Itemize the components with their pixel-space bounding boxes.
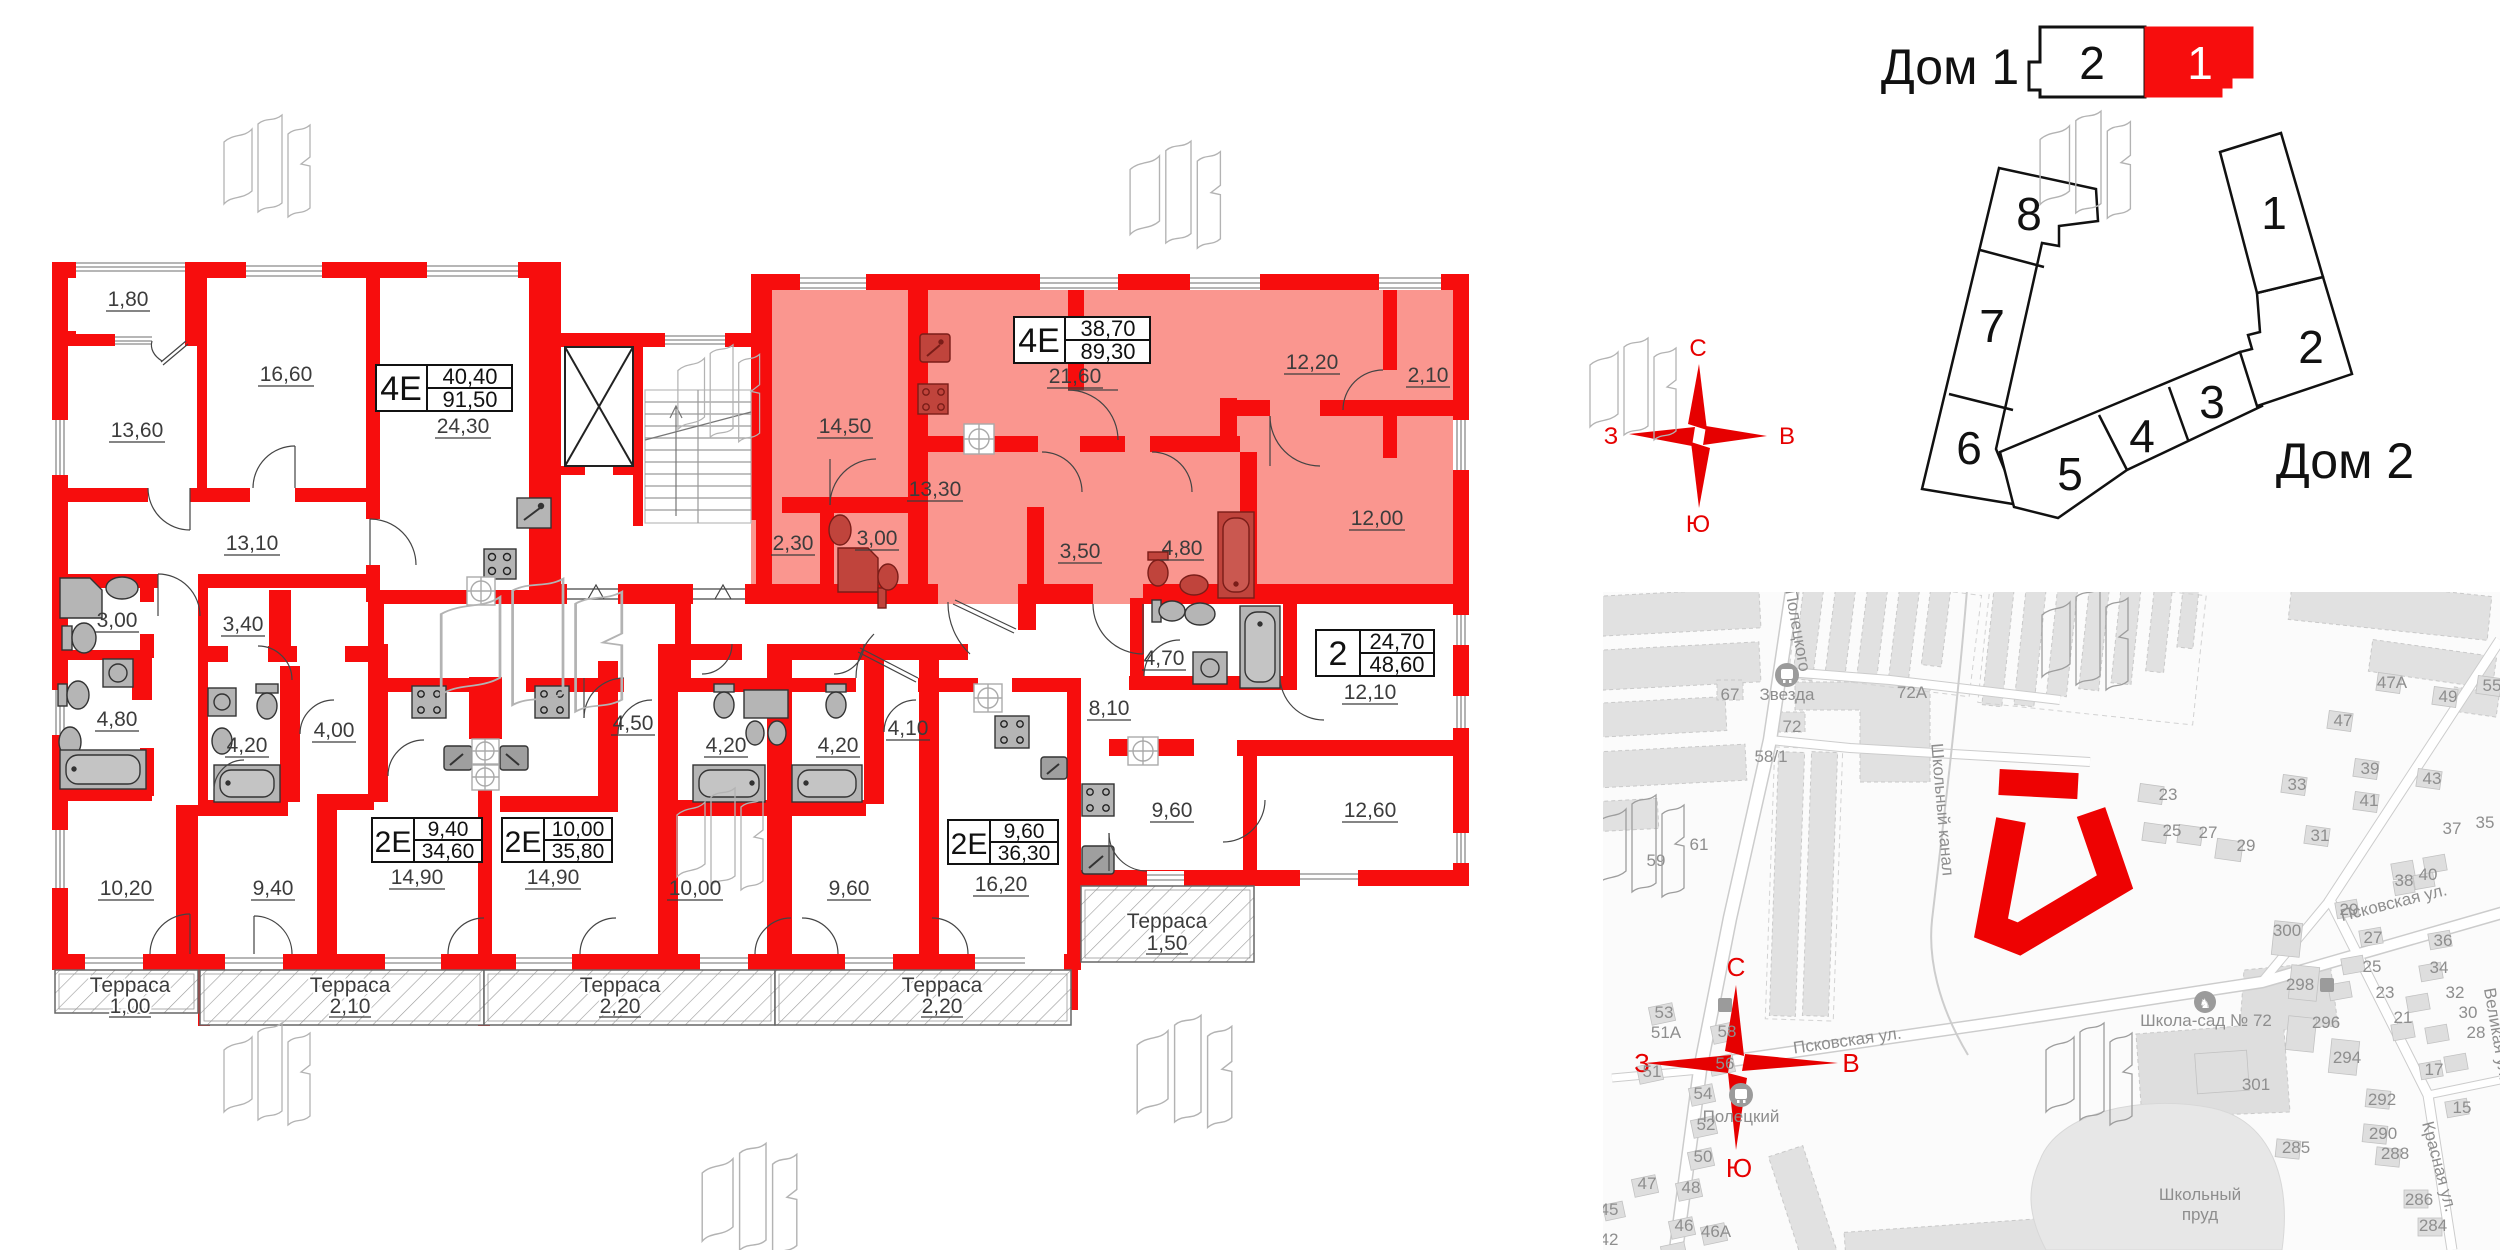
svg-text:2,10: 2,10: [1408, 364, 1449, 387]
svg-text:47А: 47А: [2377, 673, 2408, 692]
svg-text:4,10: 4,10: [888, 717, 929, 740]
svg-text:21: 21: [2394, 1008, 2413, 1027]
svg-text:С: С: [1727, 952, 1746, 982]
svg-text:3,40: 3,40: [223, 613, 264, 636]
svg-text:285: 285: [2282, 1138, 2310, 1157]
svg-text:1: 1: [2261, 187, 2287, 239]
svg-text:33: 33: [2288, 775, 2307, 794]
svg-text:З: З: [1604, 423, 1619, 450]
svg-text:286: 286: [2405, 1190, 2433, 1209]
svg-text:72А: 72А: [1897, 683, 1928, 702]
svg-text:24,30: 24,30: [437, 415, 490, 438]
svg-text:3,00: 3,00: [857, 527, 898, 550]
svg-text:300: 300: [2273, 921, 2301, 940]
svg-text:56: 56: [1716, 1054, 1735, 1073]
svg-text:284: 284: [2419, 1216, 2447, 1235]
svg-text:2Е: 2Е: [375, 826, 412, 859]
svg-text:4Е: 4Е: [380, 370, 422, 408]
svg-text:301: 301: [2242, 1075, 2270, 1094]
svg-text:31: 31: [2311, 826, 2330, 845]
svg-text:25: 25: [2363, 957, 2382, 976]
svg-text:4,80: 4,80: [97, 708, 138, 731]
svg-text:3: 3: [2199, 376, 2225, 428]
svg-text:12,60: 12,60: [1344, 799, 1397, 822]
svg-text:♞: ♞: [2199, 996, 2211, 1011]
svg-text:52: 52: [1697, 1115, 1716, 1134]
svg-text:пруд: пруд: [2182, 1205, 2218, 1224]
svg-text:41: 41: [2360, 791, 2379, 810]
svg-text:1,80: 1,80: [108, 288, 149, 311]
svg-text:16,20: 16,20: [975, 873, 1028, 896]
svg-text:24,70: 24,70: [1369, 629, 1424, 654]
svg-text:9,60: 9,60: [1004, 820, 1045, 843]
svg-text:294: 294: [2333, 1048, 2361, 1067]
svg-text:Ю: Ю: [1726, 1153, 1752, 1183]
svg-text:1: 1: [2187, 37, 2213, 89]
svg-text:48,60: 48,60: [1369, 652, 1424, 677]
svg-text:298: 298: [2286, 975, 2314, 994]
svg-text:36,30: 36,30: [998, 842, 1051, 865]
svg-text:54: 54: [1694, 1084, 1713, 1103]
svg-text:72: 72: [1783, 717, 1802, 736]
svg-text:2Е: 2Е: [951, 828, 988, 861]
svg-text:58: 58: [1718, 1022, 1737, 1041]
svg-text:13,30: 13,30: [909, 478, 962, 501]
svg-text:290: 290: [2369, 1124, 2397, 1143]
svg-text:34: 34: [2430, 958, 2449, 977]
svg-text:В: В: [1842, 1048, 1859, 1078]
svg-text:Терраса: Терраса: [90, 974, 171, 997]
svg-text:4,80: 4,80: [1162, 537, 1203, 560]
svg-text:4Е: 4Е: [1018, 322, 1060, 360]
svg-text:53: 53: [1655, 1003, 1674, 1022]
svg-text:1,00: 1,00: [110, 995, 151, 1018]
svg-text:Терраса: Терраса: [1127, 910, 1208, 933]
svg-text:12,20: 12,20: [1286, 351, 1339, 374]
svg-text:25: 25: [2163, 821, 2182, 840]
svg-text:2,10: 2,10: [330, 995, 371, 1018]
svg-text:296: 296: [2312, 1013, 2340, 1032]
svg-text:36: 36: [2434, 931, 2453, 950]
svg-text:3,00: 3,00: [97, 609, 138, 632]
svg-text:Терраса: Терраса: [310, 974, 391, 997]
svg-text:292: 292: [2368, 1090, 2396, 1109]
svg-text:12,10: 12,10: [1344, 681, 1397, 704]
svg-text:2,20: 2,20: [600, 995, 641, 1018]
svg-text:16,60: 16,60: [260, 363, 313, 386]
svg-text:9,60: 9,60: [1152, 799, 1193, 822]
svg-text:51: 51: [1643, 1062, 1662, 1081]
svg-text:40,40: 40,40: [442, 364, 497, 389]
svg-text:3,50: 3,50: [1060, 540, 1101, 563]
svg-text:13,10: 13,10: [226, 532, 279, 555]
svg-text:6: 6: [1956, 422, 1982, 474]
svg-text:49: 49: [2439, 687, 2458, 706]
svg-text:2: 2: [1329, 635, 1348, 673]
svg-text:28: 28: [2467, 1023, 2486, 1042]
svg-text:27: 27: [2364, 928, 2383, 947]
svg-text:46А: 46А: [1701, 1222, 1732, 1241]
svg-text:30: 30: [2459, 1003, 2478, 1022]
svg-text:29: 29: [2237, 836, 2256, 855]
svg-text:2: 2: [2298, 321, 2324, 373]
svg-text:32: 32: [2446, 983, 2465, 1002]
svg-text:8: 8: [2016, 188, 2042, 240]
svg-text:2,30: 2,30: [773, 532, 814, 555]
svg-text:10,00: 10,00: [552, 818, 605, 841]
svg-text:2,20: 2,20: [922, 995, 963, 1018]
svg-text:14,90: 14,90: [527, 866, 580, 889]
svg-text:38,70: 38,70: [1080, 316, 1135, 341]
svg-text:10,00: 10,00: [669, 877, 722, 900]
svg-text:50: 50: [1694, 1147, 1713, 1166]
svg-text:89,30: 89,30: [1080, 339, 1135, 364]
svg-text:10,20: 10,20: [100, 877, 153, 900]
svg-text:27: 27: [2199, 823, 2218, 842]
svg-text:1,50: 1,50: [1147, 932, 1188, 955]
svg-text:55: 55: [2483, 676, 2500, 695]
svg-text:15: 15: [2453, 1098, 2472, 1117]
svg-text:35,80: 35,80: [552, 840, 605, 863]
svg-text:23: 23: [2376, 983, 2395, 1002]
svg-text:5: 5: [2057, 448, 2083, 500]
svg-text:21,60: 21,60: [1049, 365, 1102, 388]
svg-text:В: В: [1779, 423, 1795, 450]
svg-text:Терраса: Терраса: [902, 974, 983, 997]
svg-text:51А: 51А: [1651, 1023, 1682, 1042]
svg-text:61: 61: [1690, 835, 1709, 854]
svg-text:4,20: 4,20: [706, 734, 747, 757]
svg-text:4,70: 4,70: [1144, 647, 1185, 670]
svg-text:13,60: 13,60: [111, 419, 164, 442]
svg-text:9,40: 9,40: [253, 877, 294, 900]
svg-text:46: 46: [1675, 1216, 1694, 1235]
svg-text:43: 43: [2423, 769, 2442, 788]
svg-text:35: 35: [2476, 813, 2495, 832]
svg-text:40: 40: [2419, 865, 2438, 884]
svg-text:4,00: 4,00: [314, 719, 355, 742]
svg-text:4,20: 4,20: [227, 734, 268, 757]
svg-text:48: 48: [1682, 1178, 1701, 1197]
svg-text:288: 288: [2381, 1144, 2409, 1163]
svg-text:14,50: 14,50: [819, 415, 872, 438]
svg-text:2Е: 2Е: [505, 826, 542, 859]
svg-text:2: 2: [2079, 37, 2105, 89]
svg-text:4,50: 4,50: [613, 712, 654, 735]
svg-text:8,10: 8,10: [1089, 697, 1130, 720]
svg-text:9,60: 9,60: [829, 877, 870, 900]
svg-text:58/1: 58/1: [1754, 747, 1787, 766]
svg-text:14,90: 14,90: [391, 866, 444, 889]
svg-text:34,60: 34,60: [422, 840, 475, 863]
svg-text:47: 47: [2334, 711, 2353, 730]
svg-text:12,00: 12,00: [1351, 507, 1404, 530]
svg-text:Звезда: Звезда: [1760, 685, 1816, 704]
svg-text:37: 37: [2443, 819, 2462, 838]
svg-text:С: С: [1689, 335, 1706, 362]
svg-text:7: 7: [1979, 300, 2005, 352]
svg-text:23: 23: [2159, 785, 2178, 804]
svg-text:4,20: 4,20: [818, 734, 859, 757]
svg-text:38: 38: [2395, 871, 2414, 890]
svg-text:Дом 1: Дом 1: [1881, 39, 2019, 95]
svg-text:17: 17: [2425, 1060, 2444, 1079]
svg-text:91,50: 91,50: [442, 387, 497, 412]
svg-text:9,40: 9,40: [428, 818, 469, 841]
svg-text:67: 67: [1721, 685, 1740, 704]
svg-text:47: 47: [1638, 1174, 1657, 1193]
svg-text:Школа-сад № 72: Школа-сад № 72: [2140, 1011, 2272, 1030]
svg-text:39: 39: [2361, 759, 2380, 778]
svg-text:Школьный: Школьный: [2159, 1185, 2241, 1204]
svg-text:4: 4: [2129, 410, 2155, 462]
svg-text:Ю: Ю: [1686, 511, 1710, 538]
svg-text:Дом 2: Дом 2: [2276, 433, 2414, 489]
svg-text:Терраса: Терраса: [580, 974, 661, 997]
